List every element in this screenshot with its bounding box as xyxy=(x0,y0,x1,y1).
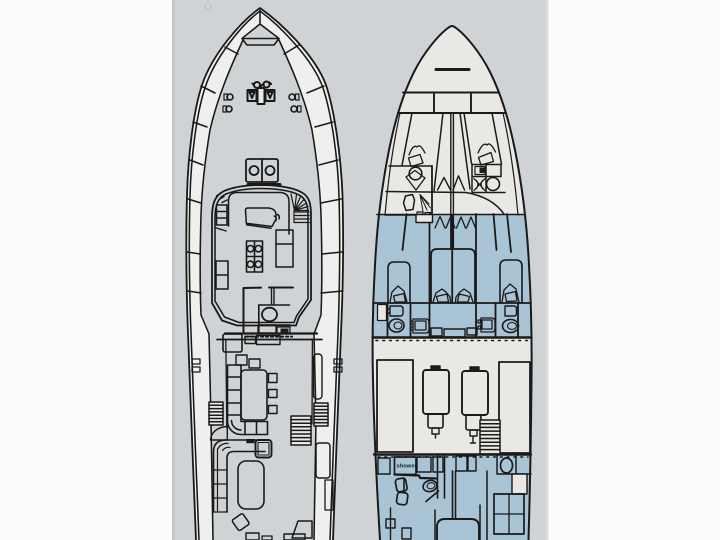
svg-text:shower: shower xyxy=(397,464,418,470)
